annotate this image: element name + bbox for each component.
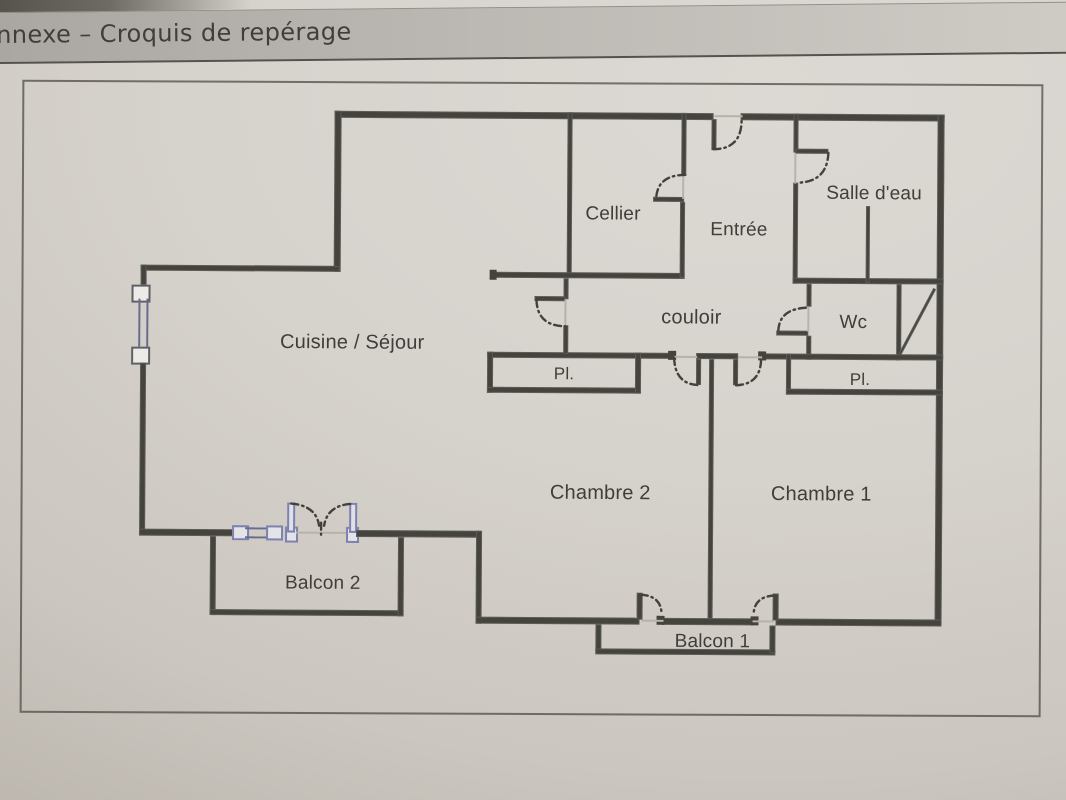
floor-plan: Cuisine / SéjourCellierEntréeSalle d'eau…	[0, 0, 1066, 800]
kitchen-corridor-door-leaf-icon	[534, 296, 565, 301]
window-glazing-icon	[245, 527, 267, 538]
wall-cellier-right-stub	[681, 113, 686, 175]
wall-corridor-bottom-center	[696, 353, 738, 359]
balcony1-door-left-leaf-icon	[637, 593, 643, 620]
french-door-left-leaf-icon	[287, 503, 295, 533]
balcony1-wall-right	[769, 625, 775, 653]
room-label-chambre-2: Chambre 2	[550, 482, 651, 506]
balcony1-door-right-leaf-icon	[773, 593, 779, 620]
wall-kitchen-left-upper	[141, 265, 147, 287]
wall-cellier-right-lower	[680, 202, 685, 278]
door-threshold	[738, 356, 762, 358]
french-door-left-swing-arc	[291, 504, 319, 526]
wc-door-swing-arc	[778, 308, 807, 331]
balcony1-left-door-swing-arc	[641, 595, 662, 615]
wall-top-left-of-entry-door	[335, 111, 714, 120]
scanned-floor-plan-page: nnexe – Croquis de repérage	[0, 0, 1066, 800]
wall-kitchen-bottom-b	[356, 530, 479, 538]
room-label-cuisine-sejour: Cuisine / Séjour	[280, 331, 425, 355]
window-frame-block-icon	[266, 525, 283, 540]
wall-cellier-bottom	[493, 272, 685, 279]
cellier-door-swing-arc	[656, 175, 685, 199]
entry-door-threshold	[715, 115, 743, 117]
room-label-salle-d-eau: Salle d'eau	[826, 183, 922, 206]
door-threshold	[753, 620, 774, 622]
room-label-cellier: Cellier	[585, 203, 640, 225]
room-label-placard-chambre-2: Pl.	[554, 364, 575, 384]
french-door-right-swing-arc	[324, 504, 350, 526]
door-threshold	[674, 356, 697, 358]
wall-bottom-b	[663, 618, 753, 626]
entry-door-swing-arc	[713, 120, 741, 149]
room-label-couloir: couloir	[661, 306, 721, 329]
wall-chamber-divider	[708, 359, 715, 621]
duct-shaft-diagonal-icon	[898, 288, 936, 357]
balcony2-wall-right	[398, 537, 404, 616]
wall-kitchen-corridor-stub-lower	[563, 325, 568, 354]
wall-corridor-bottom-left	[487, 352, 673, 359]
room-labels-layer: Cuisine / SéjourCellierEntréeSalle d'eau…	[2, 0, 1066, 3]
room-label-placard-chambre-1: Pl.	[850, 370, 871, 390]
wall-cellier-left	[567, 112, 573, 277]
door-threshold	[807, 307, 809, 332]
french-door-threshold	[296, 532, 347, 534]
window-glazing-icon	[138, 299, 148, 347]
closet2-wall-bottom	[487, 387, 641, 394]
wall-outer-left-upper	[334, 111, 342, 272]
balcony1-right-door-swing-arc	[754, 595, 775, 615]
chamber1-door-swing-arc	[736, 358, 761, 385]
closet2-wall-right	[635, 353, 641, 394]
wall-kitchen-left-lower	[139, 363, 146, 535]
bathroom-inner-partition	[866, 206, 870, 283]
door-threshold	[794, 154, 796, 184]
chamber1-door-leaf-icon	[733, 359, 738, 385]
wall-outer-right	[935, 114, 945, 626]
chamber2-door-swing-arc	[674, 358, 698, 385]
door-threshold	[642, 620, 664, 622]
balcony2-wall-bottom	[210, 609, 404, 616]
wall-chamber2-left	[476, 531, 483, 624]
room-label-chambre-1: Chambre 1	[771, 483, 872, 507]
bathroom-door-leaf-icon	[795, 149, 828, 154]
entry-door-leaf-icon	[711, 119, 716, 150]
balcony2-wall-left	[210, 536, 216, 615]
chamber2-door-leaf-icon	[696, 359, 701, 385]
wall-end-cap	[490, 270, 497, 280]
room-label-entree: Entrée	[710, 219, 767, 241]
french-door-right-leaf-icon	[349, 503, 357, 533]
wall-kitchen-bottom-a	[139, 529, 233, 537]
wall-kitchen-top	[141, 265, 340, 272]
kitchen-corridor-door-swing-arc	[536, 300, 565, 326]
wall-bottom-c	[776, 619, 942, 627]
wall-bathroom-left	[793, 183, 799, 284]
wall-bottom-a	[476, 617, 640, 625]
wc-door-leaf-icon	[776, 331, 808, 336]
wall-bathroom-left-stub	[793, 114, 798, 153]
wall-top-right-of-entry-door	[741, 113, 945, 121]
bathroom-door-swing-arc	[798, 153, 828, 183]
wall-wc-left-stub	[806, 284, 811, 307]
room-label-wc: Wc	[839, 312, 867, 334]
door-threshold	[564, 299, 566, 326]
door-threshold	[682, 175, 684, 199]
room-label-balcon-2: Balcon 2	[285, 573, 361, 595]
room-label-balcon-1: Balcon 1	[675, 631, 751, 653]
